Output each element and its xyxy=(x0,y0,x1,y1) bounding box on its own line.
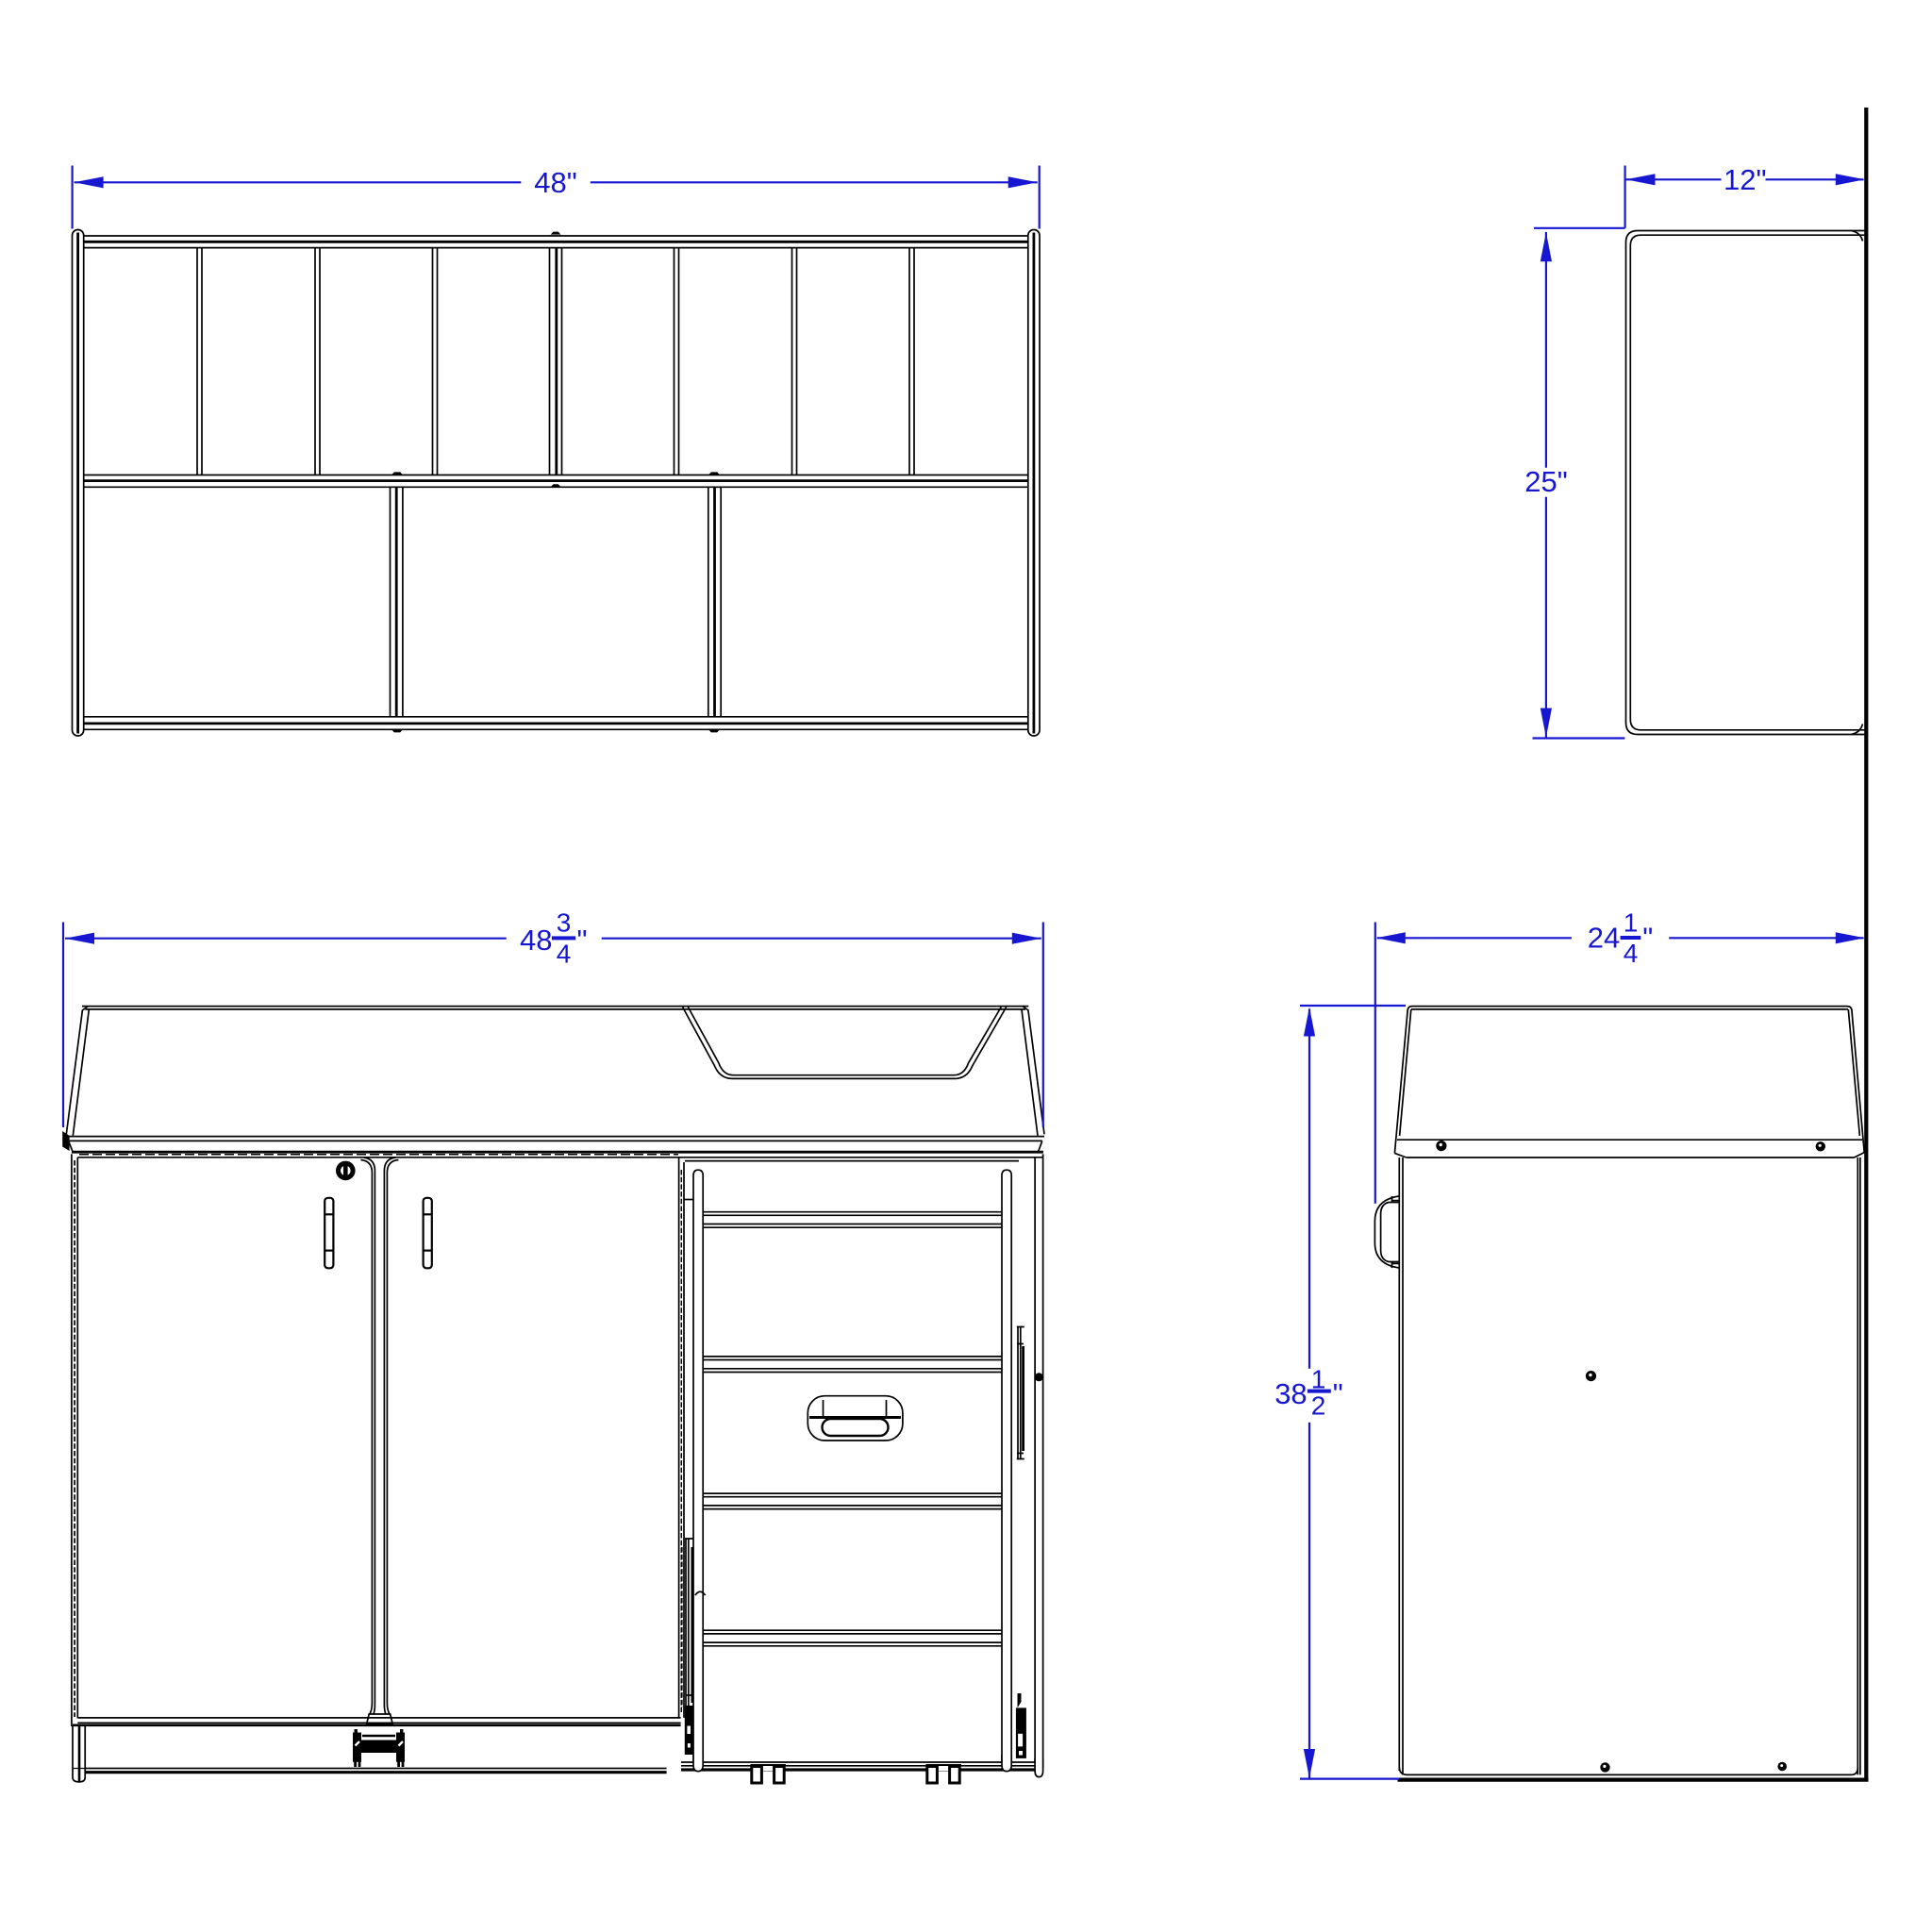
svg-text:12": 12" xyxy=(1724,163,1767,196)
svg-text:2: 2 xyxy=(1311,1391,1326,1421)
svg-text:1: 1 xyxy=(1311,1364,1326,1393)
svg-text:": " xyxy=(1642,922,1653,955)
svg-text:4: 4 xyxy=(557,940,572,969)
svg-text:24: 24 xyxy=(1588,922,1620,955)
svg-text:48": 48" xyxy=(534,166,577,199)
svg-text:3: 3 xyxy=(557,908,572,938)
svg-text:38: 38 xyxy=(1274,1377,1307,1410)
svg-text:": " xyxy=(577,924,588,957)
svg-text:25": 25" xyxy=(1524,465,1568,498)
svg-text:48: 48 xyxy=(520,924,552,957)
svg-text:4: 4 xyxy=(1624,939,1639,968)
svg-text:": " xyxy=(1333,1377,1343,1410)
svg-text:1: 1 xyxy=(1624,908,1639,937)
